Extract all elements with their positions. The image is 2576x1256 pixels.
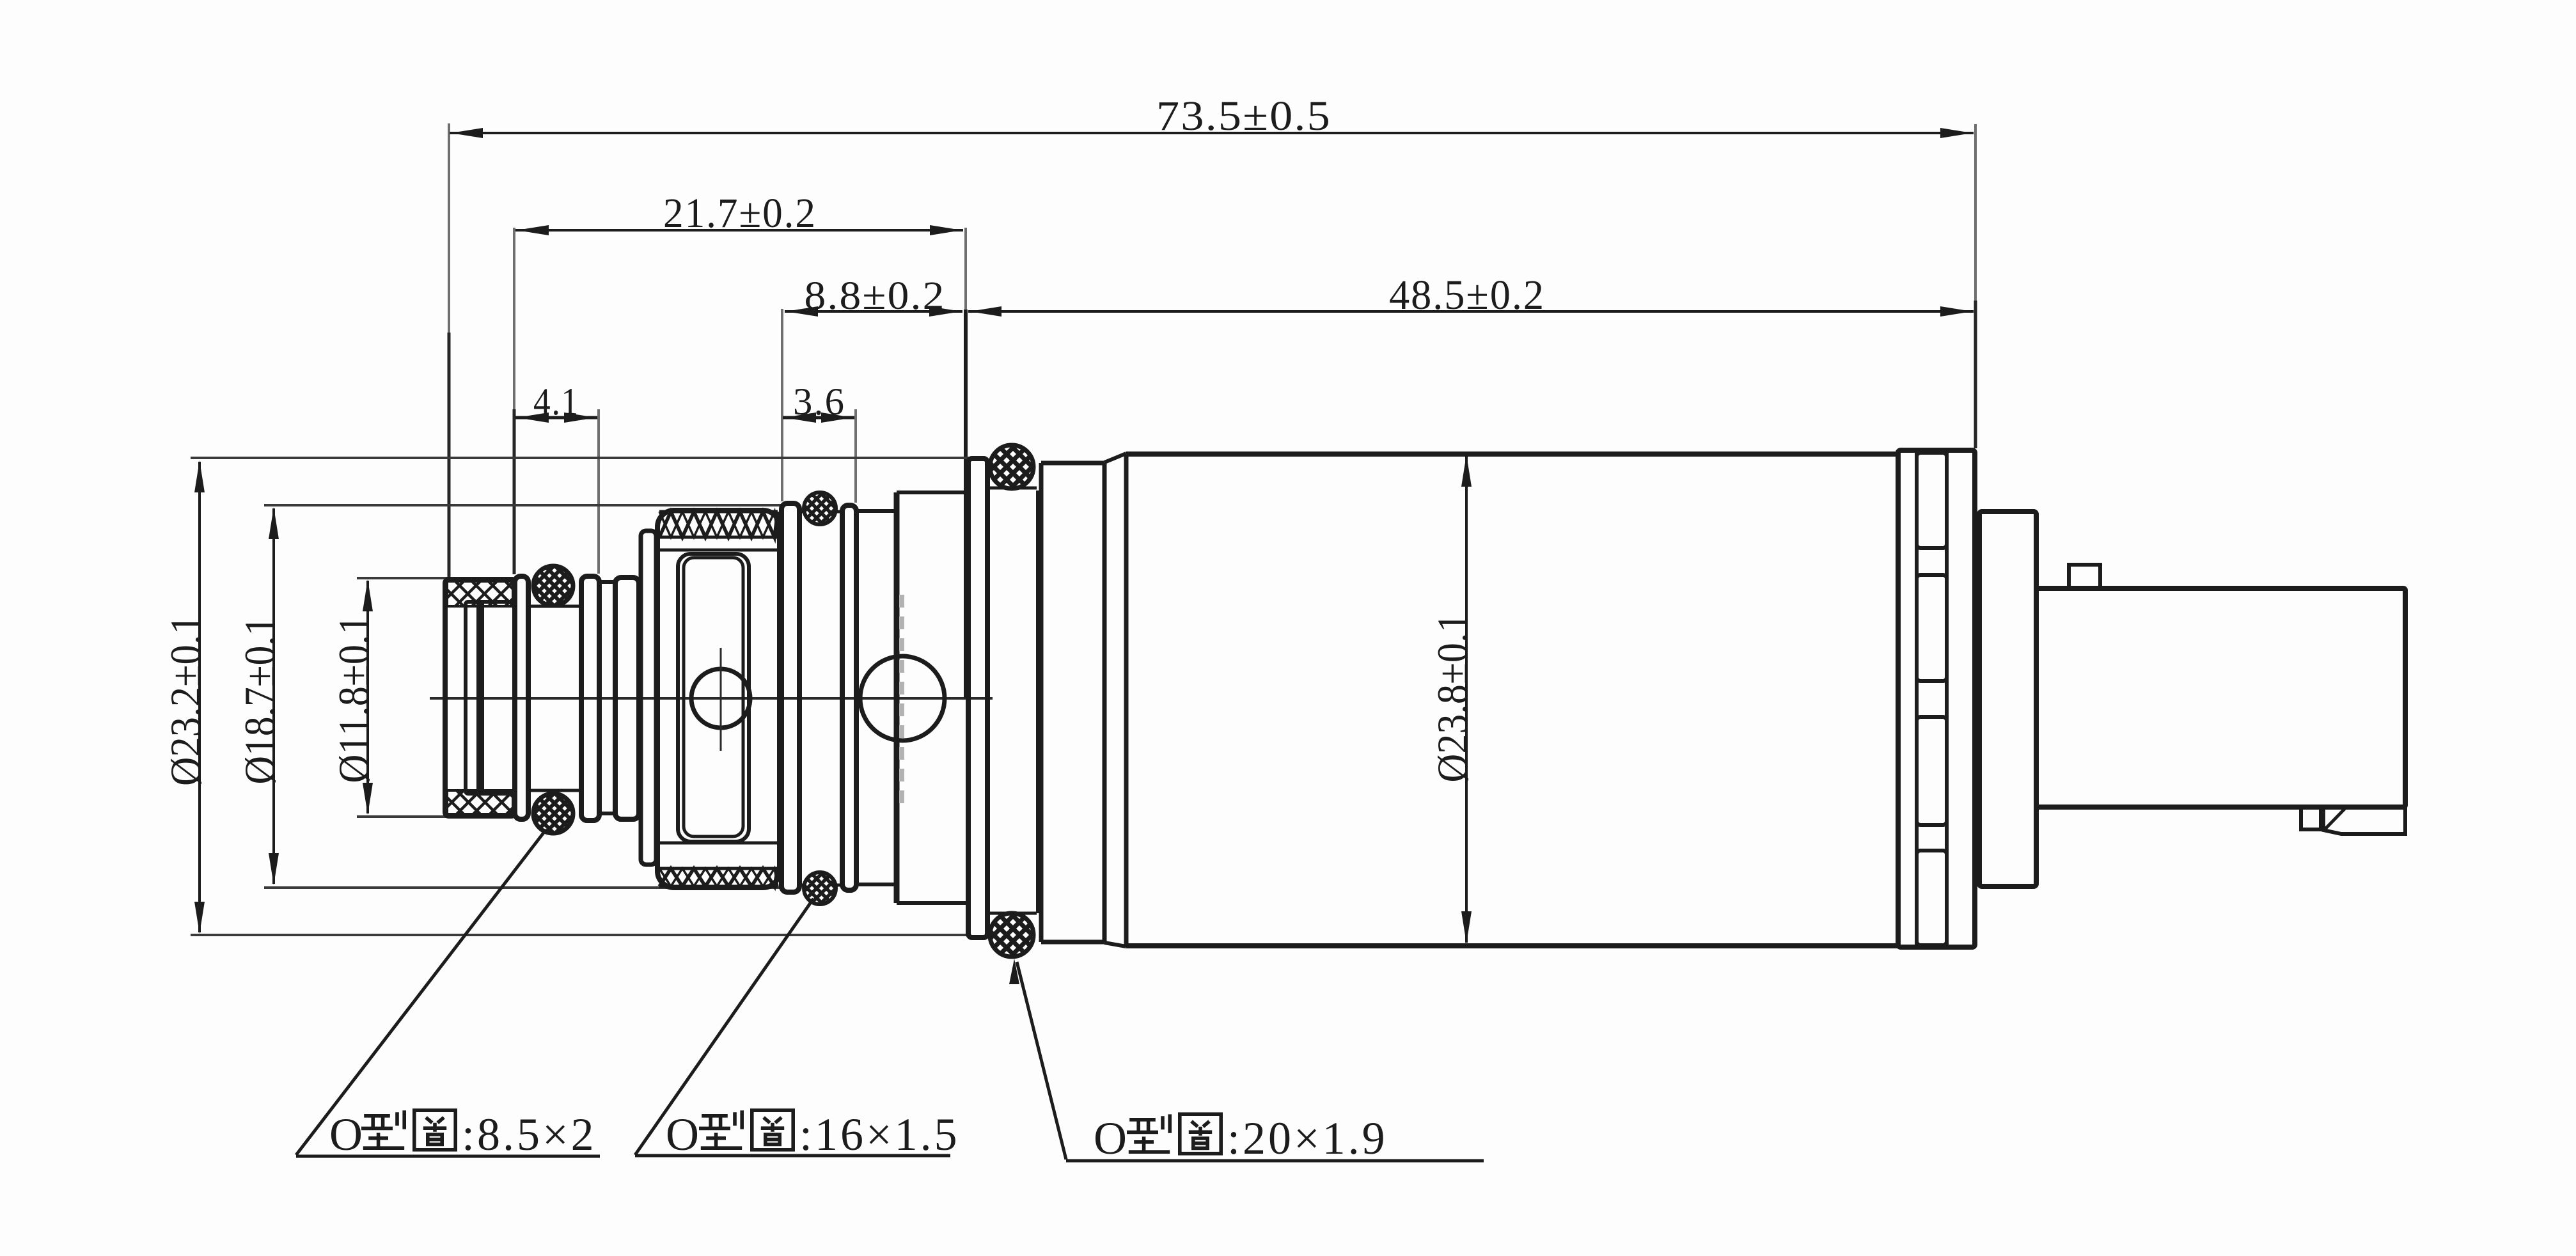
svg-text:3.6: 3.6 xyxy=(793,381,845,423)
svg-text:Ø23.8±0.1: Ø23.8±0.1 xyxy=(1428,613,1477,783)
svg-text::8.5×2: :8.5×2 xyxy=(462,1109,597,1160)
svg-text:4.1: 4.1 xyxy=(533,381,579,423)
svg-text:O: O xyxy=(666,1109,699,1160)
svg-text:73.5±0.5: 73.5±0.5 xyxy=(1156,93,1331,139)
svg-text::16×1.5: :16×1.5 xyxy=(799,1109,960,1160)
svg-text::20×1.9: :20×1.9 xyxy=(1227,1113,1388,1164)
svg-text:O: O xyxy=(329,1109,363,1160)
svg-text:Ø18.7±0.1: Ø18.7±0.1 xyxy=(235,616,284,785)
svg-text:Ø23.2±0.1: Ø23.2±0.1 xyxy=(161,615,210,786)
svg-text:21.7±0.2: 21.7±0.2 xyxy=(663,190,817,237)
svg-text:8.8±0.2: 8.8±0.2 xyxy=(805,274,946,318)
svg-text:48.5±0.2: 48.5±0.2 xyxy=(1389,272,1545,318)
svg-text:Ø11.8±0.1: Ø11.8±0.1 xyxy=(329,615,378,783)
svg-text:O: O xyxy=(1094,1113,1127,1164)
